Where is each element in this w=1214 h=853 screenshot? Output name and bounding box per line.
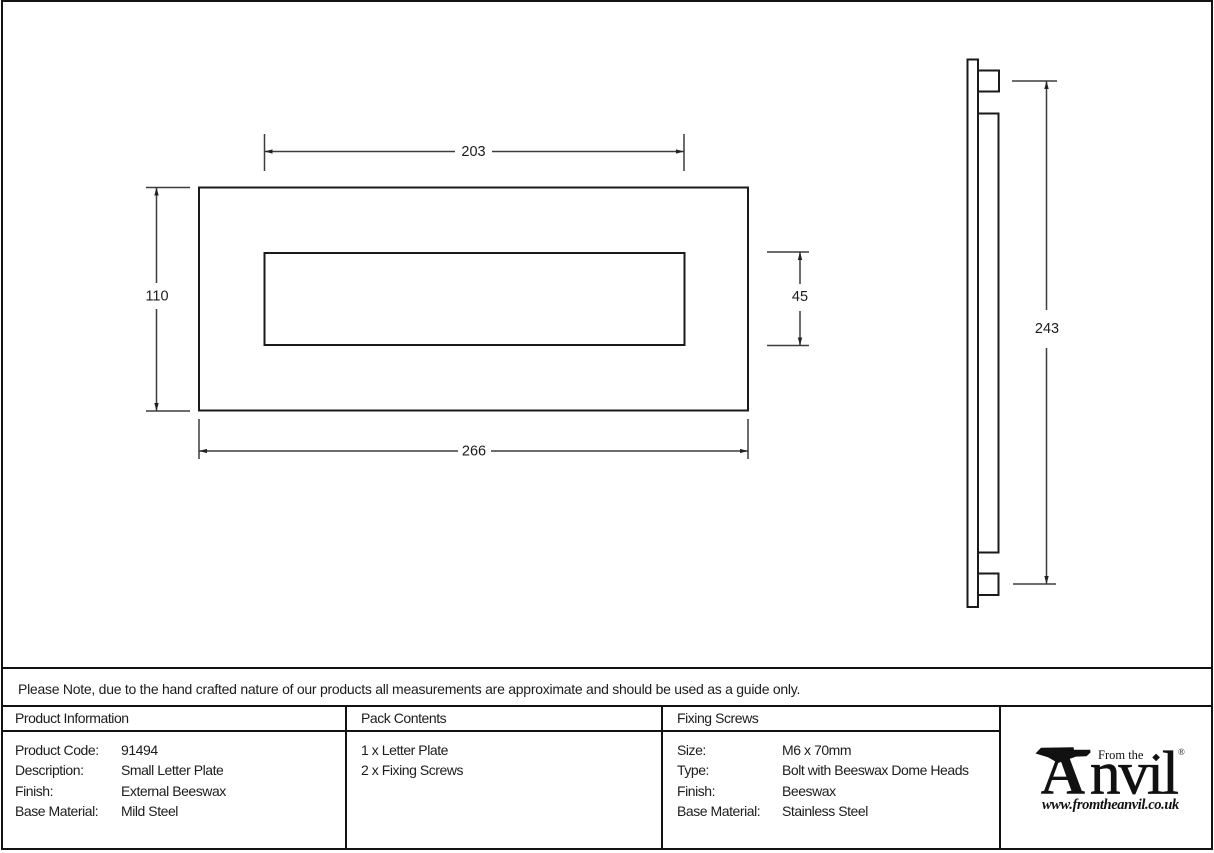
svg-text:203: 203 <box>461 144 485 160</box>
svg-text:www.fromtheanvil.co.uk: www.fromtheanvil.co.uk <box>1042 797 1180 813</box>
svg-text:45: 45 <box>792 289 808 305</box>
svg-text:110: 110 <box>145 289 168 305</box>
svg-text:266: 266 <box>462 444 486 460</box>
svg-text:From the: From the <box>1098 748 1144 762</box>
svg-text:®: ® <box>1178 747 1185 757</box>
svg-text:243: 243 <box>1035 321 1059 337</box>
